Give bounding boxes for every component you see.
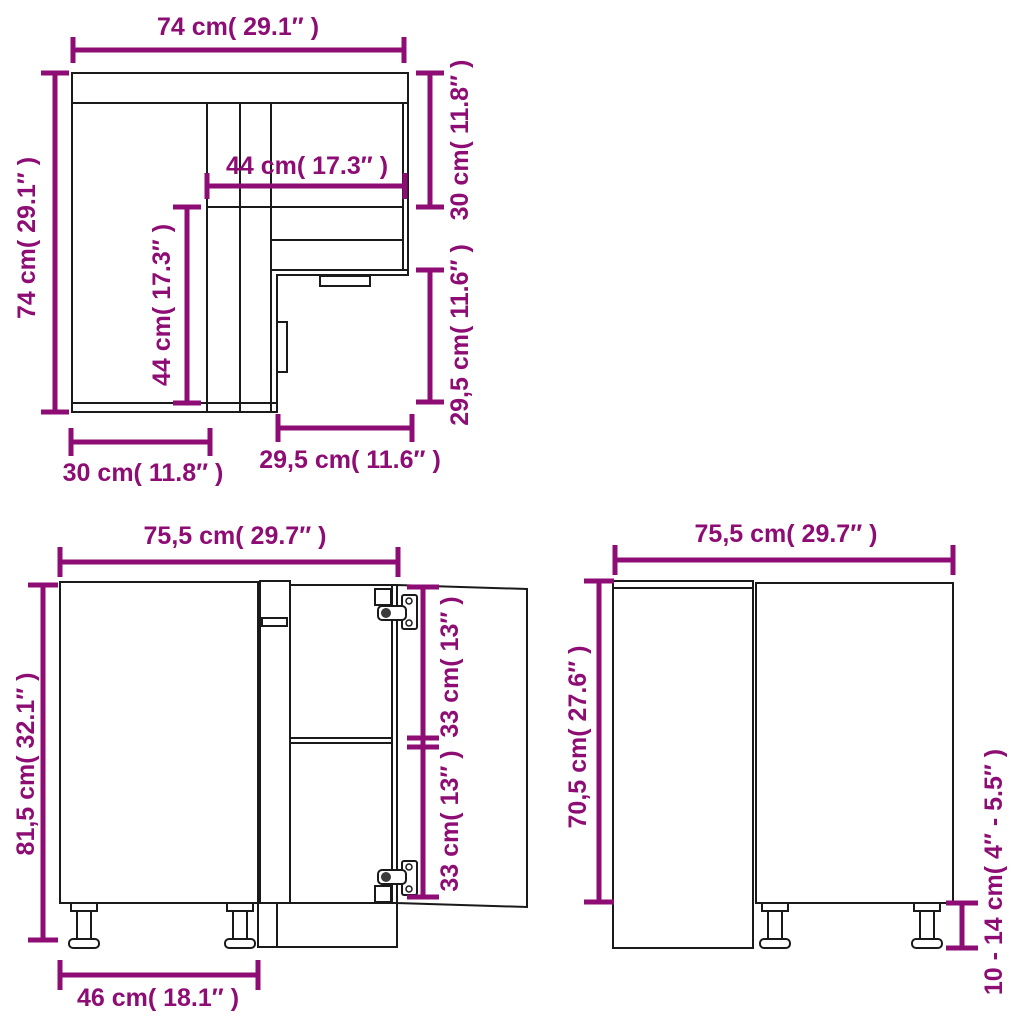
hinge-cup [375,886,391,902]
dim-line [615,545,953,575]
foot-stem [920,911,934,939]
foot-base [912,939,942,948]
foot-stem [77,911,91,939]
dimension-diagram-canvas: 74 cm( 29.1″ ) 74 cm( 29.1″ ) 44 cm( 17.… [0,0,1024,1024]
dim-label: 81,5 cm( 32.1″ ) [12,673,40,856]
dim-top-overall-width: 74 cm( 29.1″ ) [73,13,404,63]
front-plinth [258,903,397,947]
side-foot-back [912,903,942,948]
dim-label: 44 cm( 17.3″ ) [226,152,388,180]
dim-label: 30 cm( 11.8″ ) [446,60,474,221]
front-strip-handle [262,618,287,626]
front-foot-right [225,903,255,948]
dim-label: 70,5 cm( 27.6″ ) [564,646,592,829]
dim-top-right-cutout-depth: 29,5 cm( 11.6″ ) [416,244,474,426]
foot-plate [914,903,940,911]
side-carcass-body [756,583,953,903]
dim-label: 10 - 14 cm( 4″ - 5.5″ ) [980,749,1008,995]
foot-plate [762,903,788,911]
dim-side-body-height: 70,5 cm( 27.6″ ) [564,581,614,902]
side-view: 75,5 cm( 29.7″ ) 70,5 cm( 27.6″ ) 10 - 1… [564,520,1008,995]
dim-label: 29,5 cm( 11.6″ ) [259,446,441,474]
dim-top-overall-depth: 74 cm( 29.1″ ) [13,73,69,412]
dim-label: 30 cm( 11.8″ ) [63,459,224,487]
foot-stem [768,911,782,939]
foot-plate [227,903,253,911]
front-door-edge-strip [260,581,290,905]
foot-base [69,939,99,948]
dim-top-bottom-left-width: 30 cm( 11.8″ ) [63,428,224,487]
dim-label: 75,5 cm( 29.7″ ) [144,522,327,550]
dim-line [416,270,444,402]
foot-plate [71,903,97,911]
hinge-pin [381,608,391,618]
side-foot-front [760,903,790,948]
dim-label: 29,5 cm( 11.6″ ) [446,244,474,426]
foot-base [225,939,255,948]
hinge-cup [375,589,391,605]
hinge-pin [381,872,391,882]
dim-line [278,414,412,442]
dim-label: 75,5 cm( 29.7″ ) [695,520,878,548]
dim-line [416,73,444,207]
dim-top-right-depth: 30 cm( 11.8″ ) [416,60,474,221]
dim-top-bottom-cutout-width: 29,5 cm( 11.6″ ) [259,414,441,474]
dim-line [71,428,210,456]
foot-base [760,939,790,948]
dim-label: 44 cm( 17.3″ ) [148,224,176,386]
front-carcass-opening [290,585,397,903]
foot-stem [233,911,247,939]
dim-line [60,547,398,577]
dim-label: 74 cm( 29.1″ ) [157,13,319,41]
dim-side-leg-height: 10 - 14 cm( 4″ - 5.5″ ) [946,749,1008,995]
dim-front-overall-width: 75,5 cm( 29.7″ ) [60,522,398,577]
dim-label: 46 cm( 18.1″ ) [77,984,239,1012]
dim-front-overall-height: 81,5 cm( 32.1″ ) [12,585,58,940]
front-left-door [60,582,258,903]
dim-line [41,73,69,412]
side-front-panel [613,581,753,948]
cabinet-dimension-diagram: 74 cm( 29.1″ ) 74 cm( 29.1″ ) 44 cm( 17.… [0,0,1024,1024]
dim-front-door-width: 46 cm( 18.1″ ) [60,960,258,1012]
dim-side-overall-depth: 75,5 cm( 29.7″ ) [615,520,953,575]
front-view: 75,5 cm( 29.7″ ) 81,5 cm( 32.1″ ) 33 cm(… [12,522,527,1012]
front-foot-left [69,903,99,948]
top-view: 74 cm( 29.1″ ) 74 cm( 29.1″ ) 44 cm( 17.… [13,13,474,487]
dim-label-upper: 33 cm( 13″ ) [436,596,464,737]
dim-label-lower: 33 cm( 13″ ) [436,750,464,891]
top-view-handle-front [320,276,370,286]
dim-line [946,903,978,948]
top-view-handle-side [277,322,287,372]
dim-label: 74 cm( 29.1″ ) [13,157,41,319]
